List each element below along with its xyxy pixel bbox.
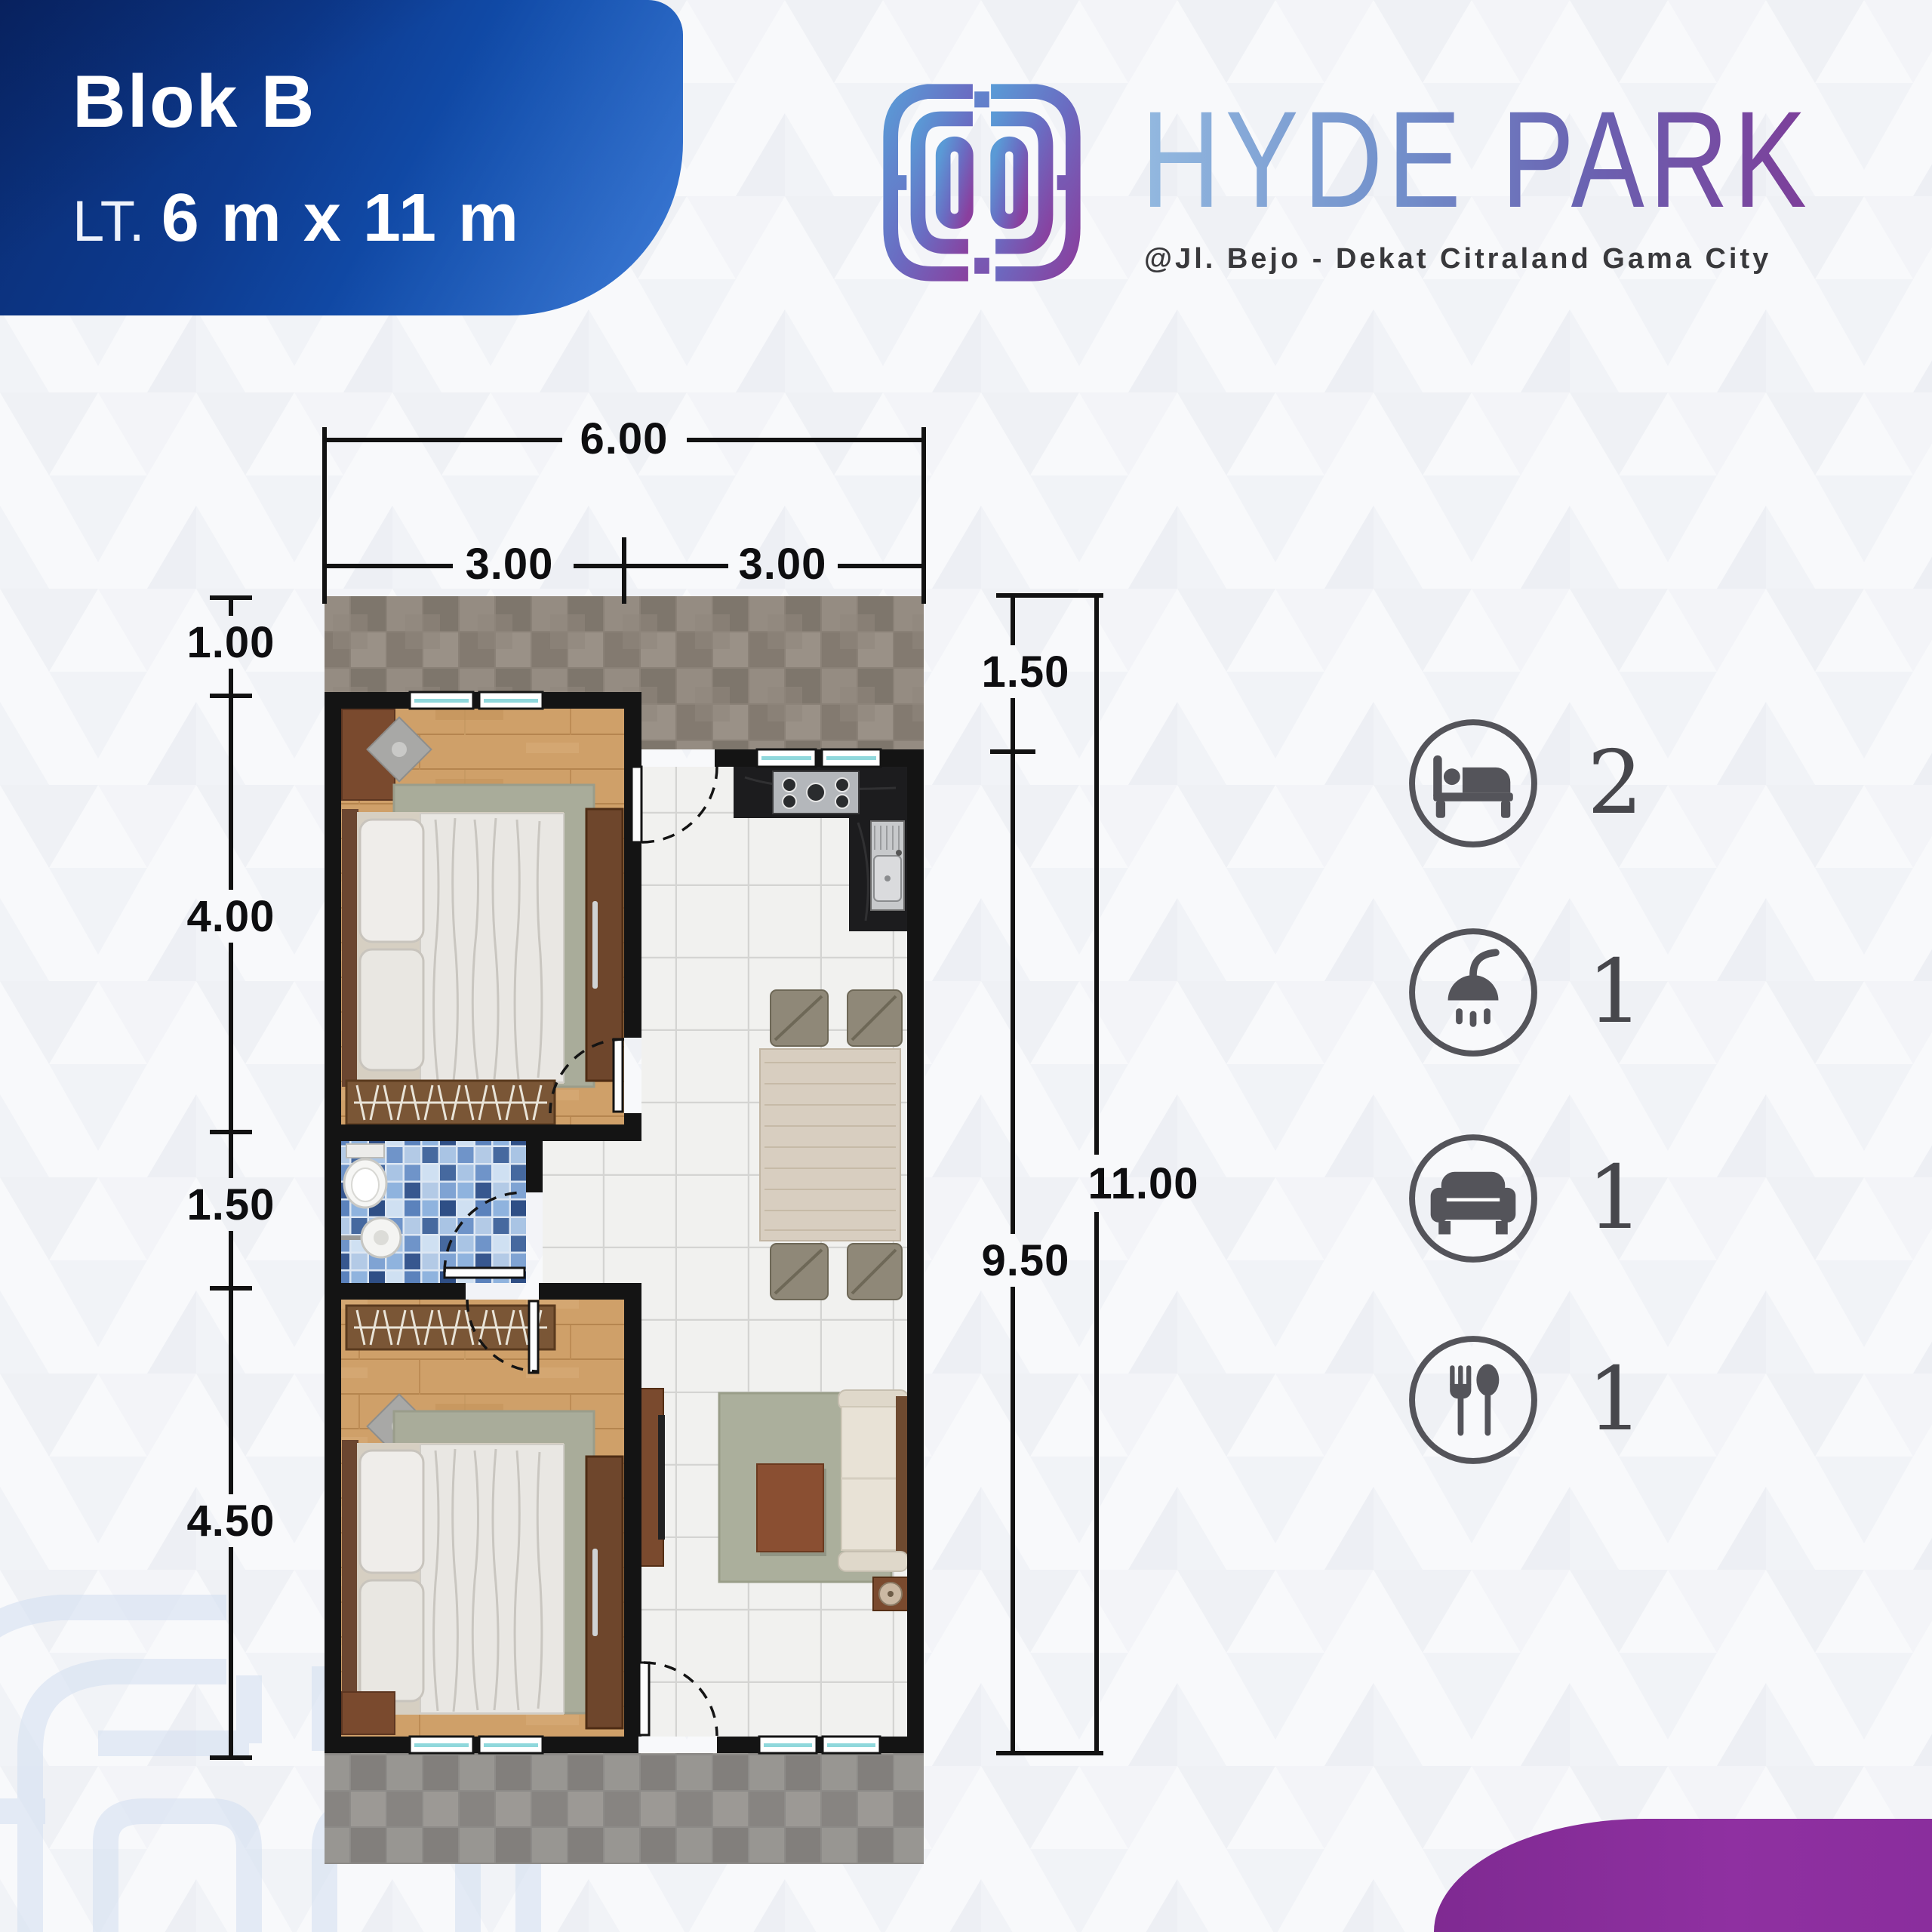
cutlery-icon <box>1407 1334 1540 1466</box>
dim-right-total: 11.00 <box>1075 1158 1211 1209</box>
maze-h-logo-icon <box>868 66 1096 299</box>
dim-top-left: 3.00 <box>449 539 570 589</box>
block-badge: Blok B LT. 6 m x 11 m <box>0 0 683 315</box>
dim-left-4: 4.50 <box>171 1496 291 1546</box>
shower-icon <box>1407 926 1540 1059</box>
bedroom-count: 2 <box>1540 717 1690 850</box>
dining-room-count: 1 <box>1540 1334 1690 1466</box>
brand-tagline: @Jl. Bejo - Dekat Citraland Gama City <box>1144 243 1771 275</box>
poster-canvas: Blok B LT. 6 m x 11 m HYDE PARK @Jl. Bej <box>0 0 1932 1932</box>
dim-top-right: 3.00 <box>722 539 843 589</box>
living-room-count: 1 <box>1540 1132 1690 1265</box>
dim-left-3: 1.50 <box>171 1180 291 1230</box>
lot-prefix-label: LT. <box>72 189 145 254</box>
bathroom-count: 1 <box>1540 926 1690 1059</box>
dim-left-1: 1.00 <box>171 617 291 668</box>
bed-icon <box>1407 717 1540 850</box>
dim-right-upper: 1.50 <box>965 647 1086 697</box>
dim-left-2: 4.00 <box>171 891 291 942</box>
lot-size-value: 6 m x 11 m <box>162 180 520 257</box>
dim-right-lower: 9.50 <box>965 1235 1086 1286</box>
brand-name: HYDE PARK <box>1141 91 1811 228</box>
lot-size-line: LT. 6 m x 11 m <box>72 180 520 257</box>
sofa-icon <box>1407 1132 1540 1265</box>
block-label: Blok B <box>72 59 315 144</box>
dim-top-total: 6.00 <box>564 414 685 464</box>
